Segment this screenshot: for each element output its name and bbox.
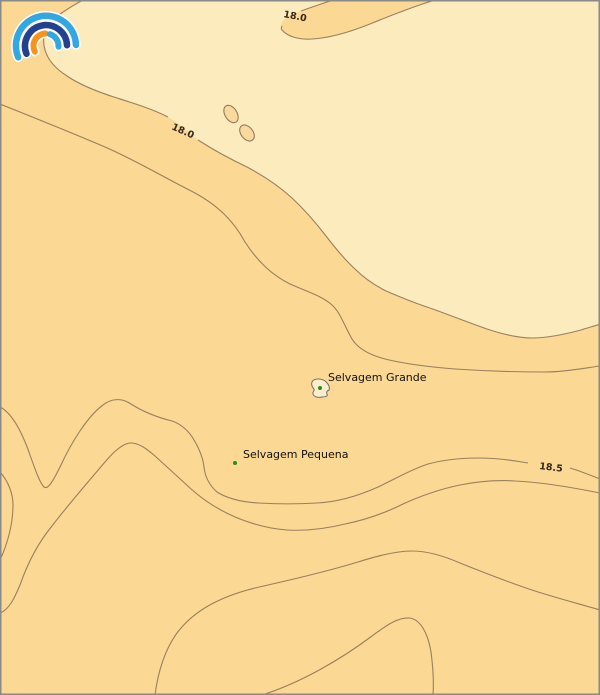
selvagem-grande-marker: [318, 386, 322, 390]
selvagem-pequena-marker: [233, 461, 237, 465]
place-label-selvagem-pequena: Selvagem Pequena: [243, 448, 348, 461]
sea-temperature-map: 18.0 18.0 18.5 Selvagem Grande Selvagem …: [0, 0, 600, 695]
place-label-selvagem-grande: Selvagem Grande: [328, 371, 427, 384]
